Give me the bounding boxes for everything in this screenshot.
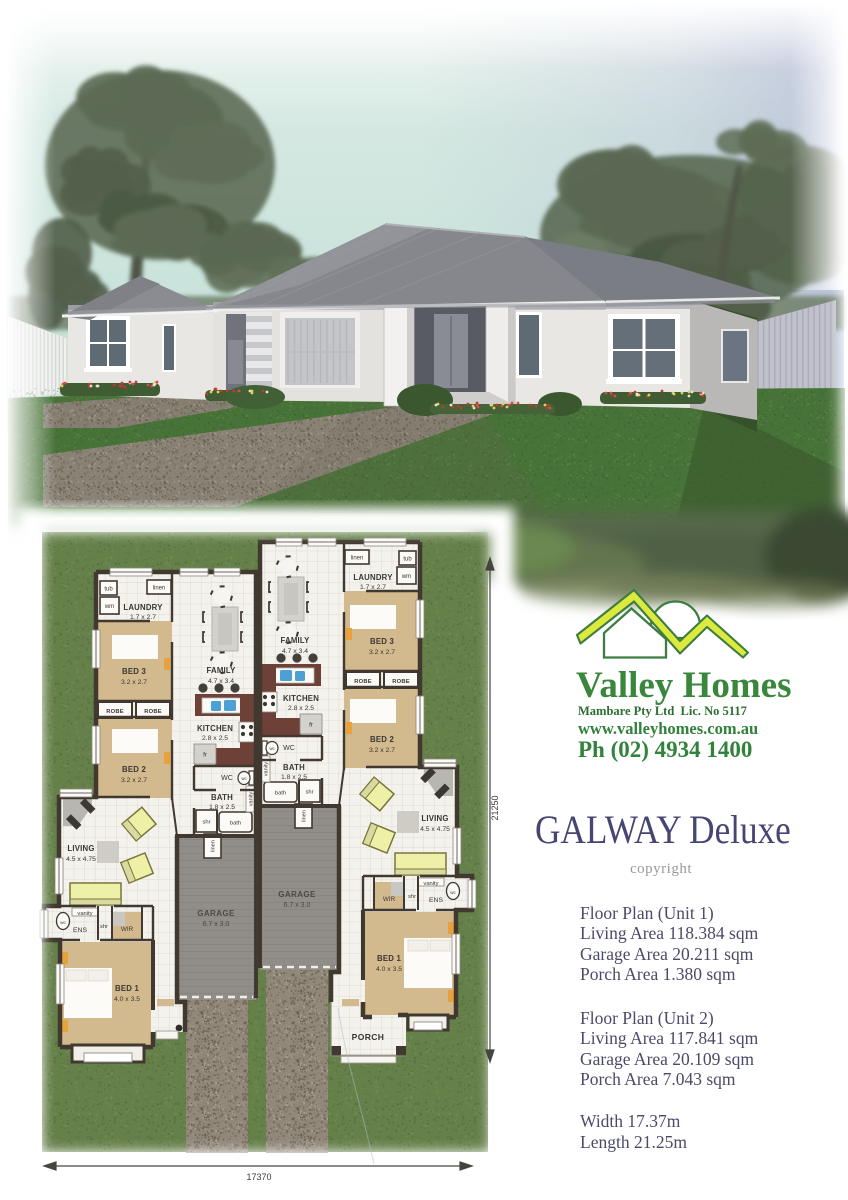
svg-text:ROBE: ROBE	[354, 679, 372, 685]
svg-text:1.8 x 2.5: 1.8 x 2.5	[281, 774, 307, 781]
svg-text:ENS: ENS	[73, 927, 87, 934]
svg-text:1.7 x 2.7: 1.7 x 2.7	[360, 584, 386, 591]
svg-text:LIVING: LIVING	[421, 814, 448, 823]
svg-text:fr: fr	[203, 752, 207, 759]
svg-text:GARAGE: GARAGE	[197, 909, 235, 918]
svg-text:FAMILY: FAMILY	[206, 666, 236, 675]
svg-text:wc: wc	[269, 746, 274, 751]
svg-text:WIR: WIR	[121, 926, 134, 933]
svg-text:17370: 17370	[246, 1172, 271, 1182]
svg-text:bath: bath	[230, 821, 241, 827]
svg-text:WIR: WIR	[383, 896, 396, 903]
svg-text:PORCH: PORCH	[352, 1032, 385, 1042]
svg-text:1.7 x 2.7: 1.7 x 2.7	[130, 614, 156, 621]
svg-text:shr: shr	[100, 924, 108, 930]
svg-text:wc: wc	[60, 920, 66, 925]
svg-text:linen: linen	[211, 840, 217, 852]
svg-text:3.2 x 2.7: 3.2 x 2.7	[121, 777, 147, 784]
svg-text:BED 3: BED 3	[370, 637, 394, 646]
svg-text:LAUNDRY: LAUNDRY	[353, 573, 393, 582]
svg-text:fr: fr	[309, 722, 313, 729]
svg-text:4.0 x 3.5: 4.0 x 3.5	[376, 966, 402, 973]
svg-text:shr: shr	[202, 820, 210, 826]
svg-text:3.2 x 2.7: 3.2 x 2.7	[369, 747, 395, 754]
svg-text:ROBE: ROBE	[392, 679, 410, 685]
svg-text:tub: tub	[403, 557, 412, 563]
svg-text:vanity: vanity	[264, 762, 270, 777]
svg-text:BED 2: BED 2	[370, 735, 394, 744]
svg-text:4.5 x 4.75: 4.5 x 4.75	[66, 856, 96, 863]
svg-text:BATH: BATH	[283, 763, 305, 772]
svg-text:BED 1: BED 1	[377, 954, 401, 963]
svg-text:4.0 x 3.5: 4.0 x 3.5	[114, 996, 140, 1003]
svg-text:linen: linen	[302, 810, 308, 822]
svg-text:wc: wc	[241, 776, 246, 781]
svg-text:2.8 x 2.5: 2.8 x 2.5	[288, 705, 314, 712]
svg-text:wc: wc	[450, 890, 456, 895]
svg-text:4.7 x 3.4: 4.7 x 3.4	[208, 678, 234, 685]
svg-text:FAMILY: FAMILY	[280, 636, 310, 645]
svg-text:ROBE: ROBE	[144, 709, 162, 715]
svg-text:shr: shr	[305, 790, 313, 796]
svg-text:shr: shr	[408, 894, 416, 900]
svg-text:WC: WC	[283, 745, 295, 752]
svg-text:BATH: BATH	[211, 793, 233, 802]
svg-text:ROBE: ROBE	[106, 709, 124, 715]
svg-text:tub: tub	[104, 587, 113, 593]
svg-text:2.8 x 2.5: 2.8 x 2.5	[202, 735, 228, 742]
svg-text:GARAGE: GARAGE	[278, 890, 316, 899]
svg-text:LAUNDRY: LAUNDRY	[123, 603, 163, 612]
svg-text:6.7 x 3.0: 6.7 x 3.0	[203, 921, 230, 928]
svg-text:4.5 x 4.75: 4.5 x 4.75	[420, 826, 450, 833]
svg-text:linen: linen	[351, 556, 364, 562]
svg-text:wm: wm	[401, 574, 411, 580]
svg-text:3.2 x 2.7: 3.2 x 2.7	[121, 679, 147, 686]
svg-text:WC: WC	[221, 775, 233, 782]
svg-text:6.7 x 3.0: 6.7 x 3.0	[284, 902, 311, 909]
svg-text:BED 3: BED 3	[122, 667, 146, 676]
svg-text:vanity: vanity	[249, 792, 255, 807]
svg-text:KITCHEN: KITCHEN	[197, 724, 233, 733]
svg-text:bath: bath	[275, 791, 286, 797]
svg-text:BED 2: BED 2	[122, 765, 146, 774]
svg-text:BED 1: BED 1	[115, 984, 139, 993]
svg-text:4.7 x 3.4: 4.7 x 3.4	[282, 648, 308, 655]
svg-text:1.8 x 2.5: 1.8 x 2.5	[209, 804, 235, 811]
svg-text:linen: linen	[153, 586, 166, 592]
svg-text:vanity: vanity	[77, 911, 92, 917]
svg-text:KITCHEN: KITCHEN	[283, 694, 319, 703]
svg-text:3.2 x 2.7: 3.2 x 2.7	[369, 649, 395, 656]
svg-text:vanity: vanity	[423, 881, 438, 887]
svg-text:LIVING: LIVING	[67, 844, 94, 853]
svg-text:wm: wm	[104, 604, 114, 610]
svg-text:21250: 21250	[490, 795, 500, 820]
svg-text:ENS: ENS	[429, 897, 443, 904]
